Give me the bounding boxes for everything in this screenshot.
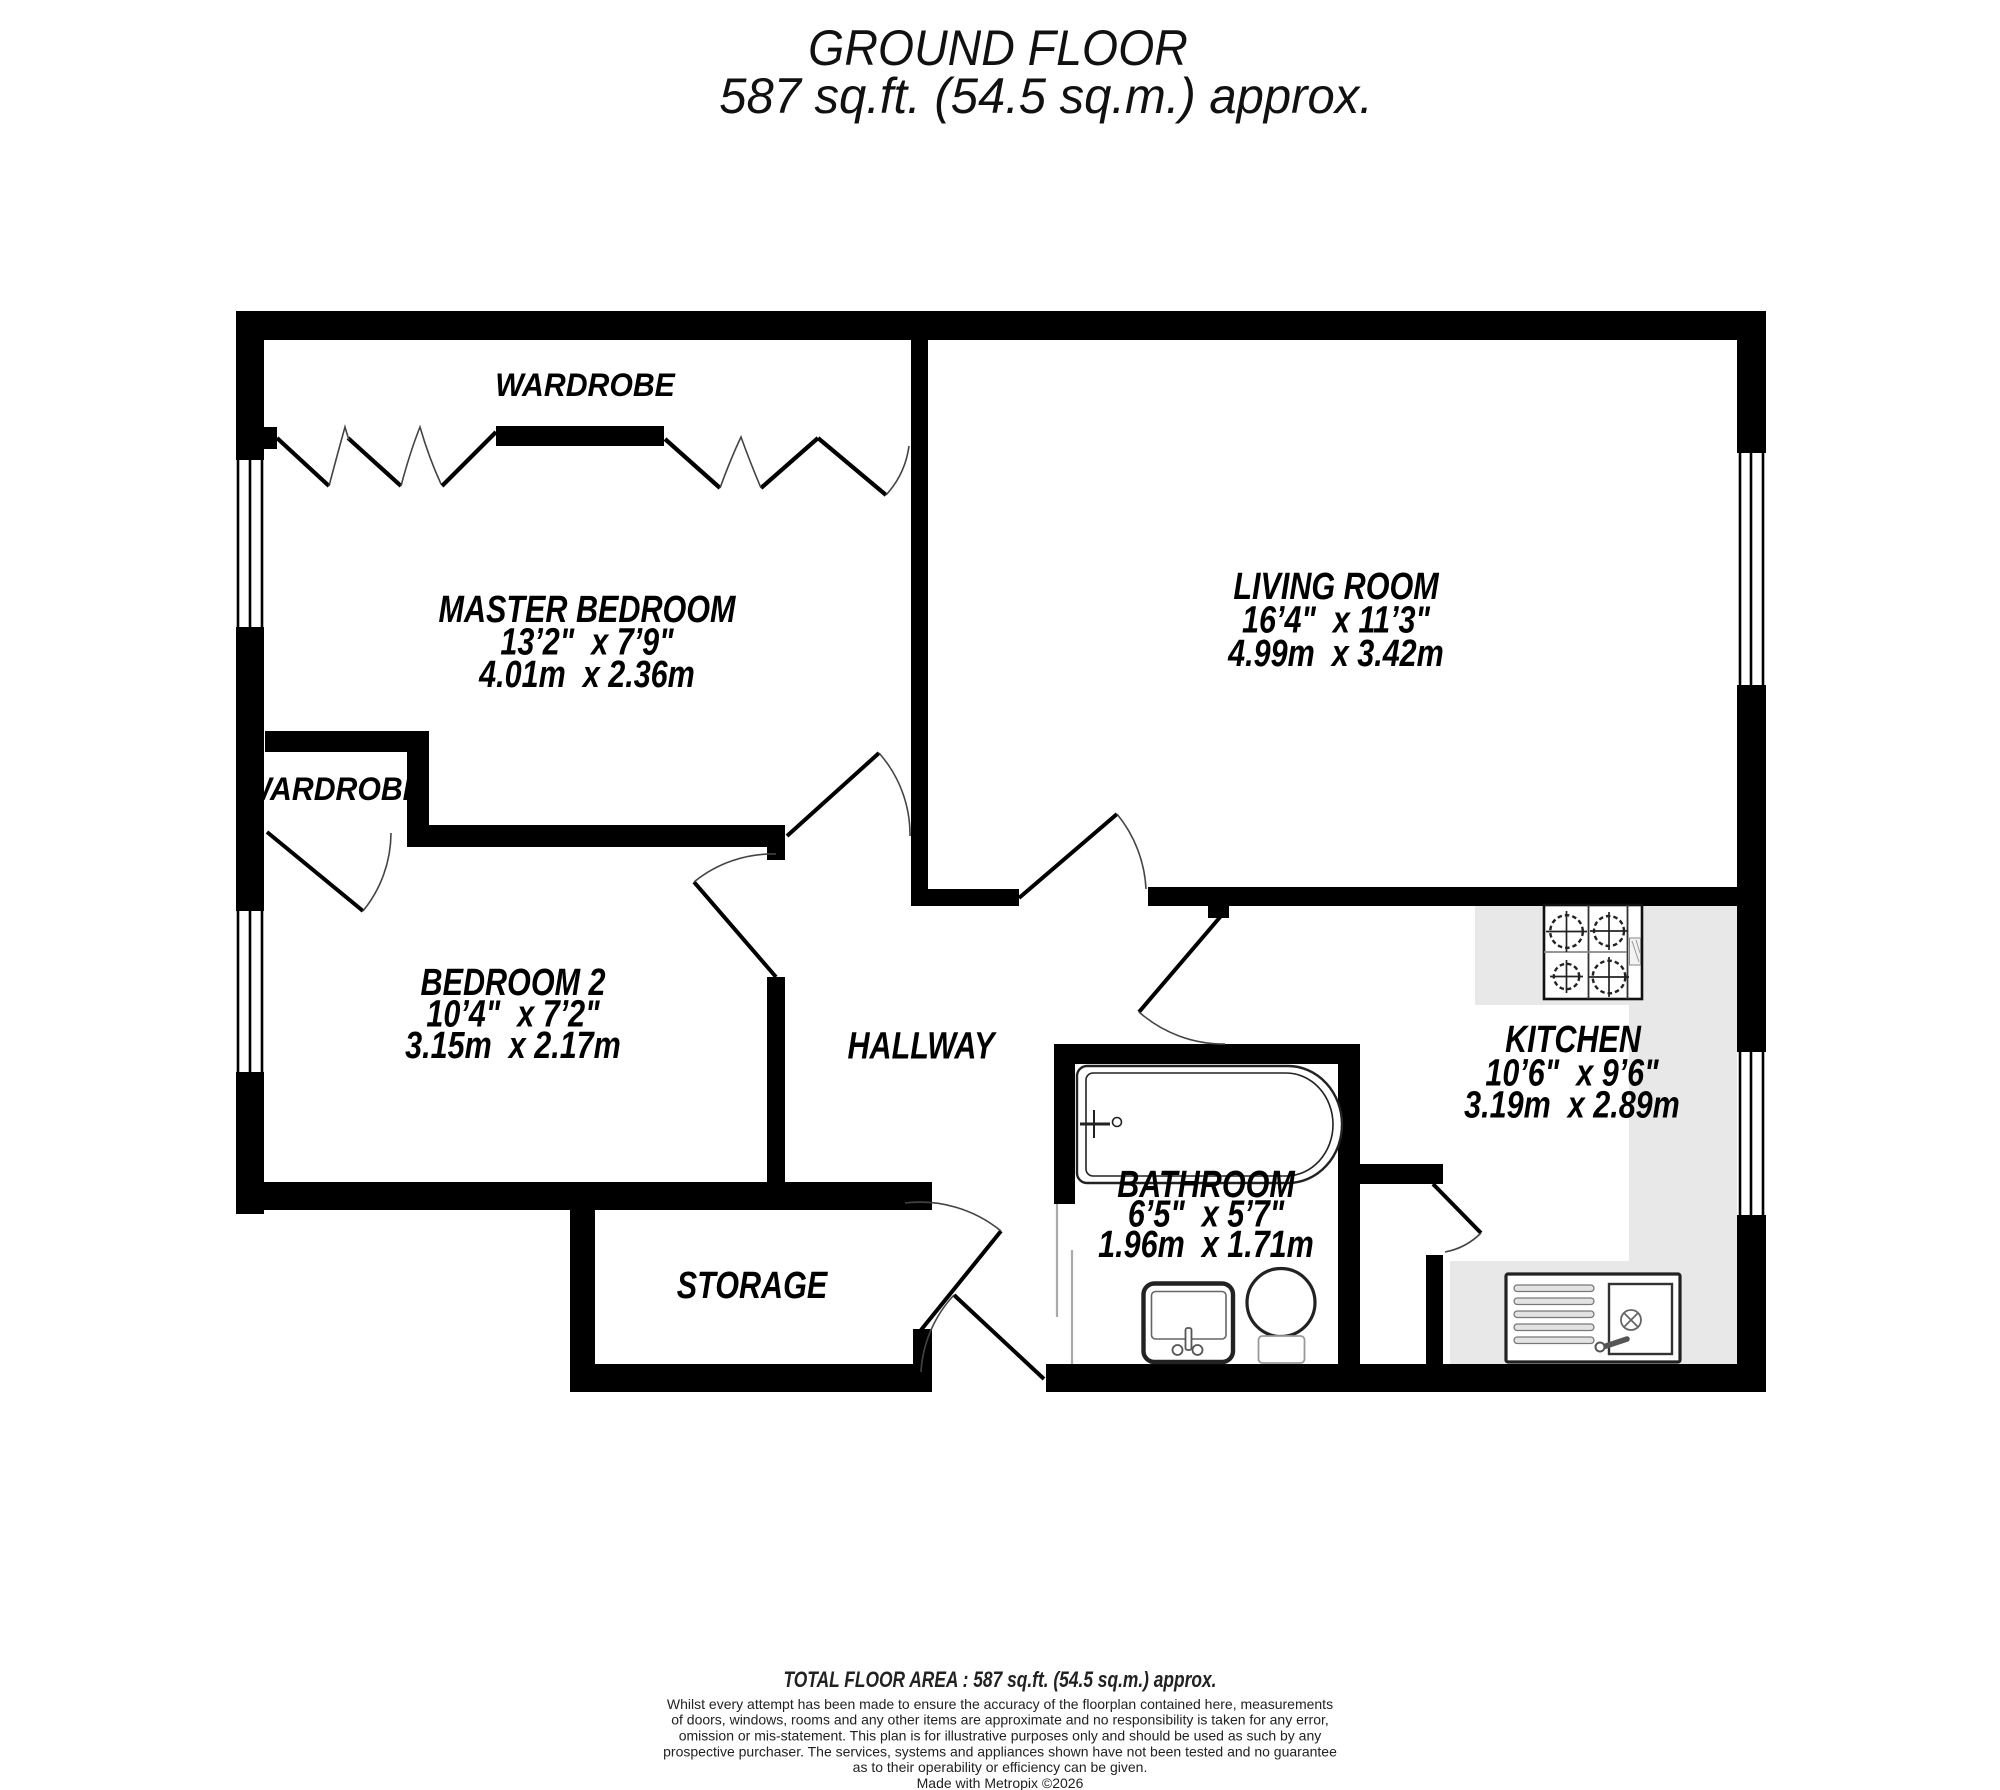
svg-text:587 sq.ft. (54.5 sq.m.) approx: 587 sq.ft. (54.5 sq.m.) approx. (719, 69, 1373, 125)
svg-text:3.19m x 2.89m: 3.19m x 2.89m (1464, 1084, 1680, 1126)
svg-text:of doors, windows, rooms and a: of doors, windows, rooms and any other i… (671, 1712, 1329, 1728)
svg-text:WARDROBE: WARDROBE (243, 771, 424, 807)
svg-text:omission or mis-statement. Thi: omission or mis-statement. This plan is … (679, 1728, 1322, 1744)
svg-text:as to their operability or eff: as to their operability or efficiency ca… (853, 1759, 1148, 1775)
svg-text:Whilst every attempt has been: Whilst every attempt has been made to en… (667, 1696, 1333, 1712)
svg-text:4.99m x 3.42m: 4.99m x 3.42m (1227, 633, 1444, 675)
svg-text:WARDROBE: WARDROBE (495, 367, 676, 403)
svg-text:Made with Metropix ©2026: Made with Metropix ©2026 (917, 1775, 1084, 1790)
svg-text:TOTAL FLOOR AREA : 587 sq.ft.: TOTAL FLOOR AREA : 587 sq.ft. (54.5 sq.m… (783, 1668, 1216, 1692)
svg-text:1.96m x 1.71m: 1.96m x 1.71m (1098, 1224, 1314, 1266)
svg-text:STORAGE: STORAGE (677, 1265, 828, 1307)
svg-text:prospective purchaser. The ser: prospective purchaser. The services, sys… (663, 1743, 1337, 1759)
svg-text:HALLWAY: HALLWAY (847, 1025, 997, 1067)
svg-text:3.15m x 2.17m: 3.15m x 2.17m (405, 1025, 621, 1067)
svg-text:4.01m x 2.36m: 4.01m x 2.36m (478, 654, 695, 696)
